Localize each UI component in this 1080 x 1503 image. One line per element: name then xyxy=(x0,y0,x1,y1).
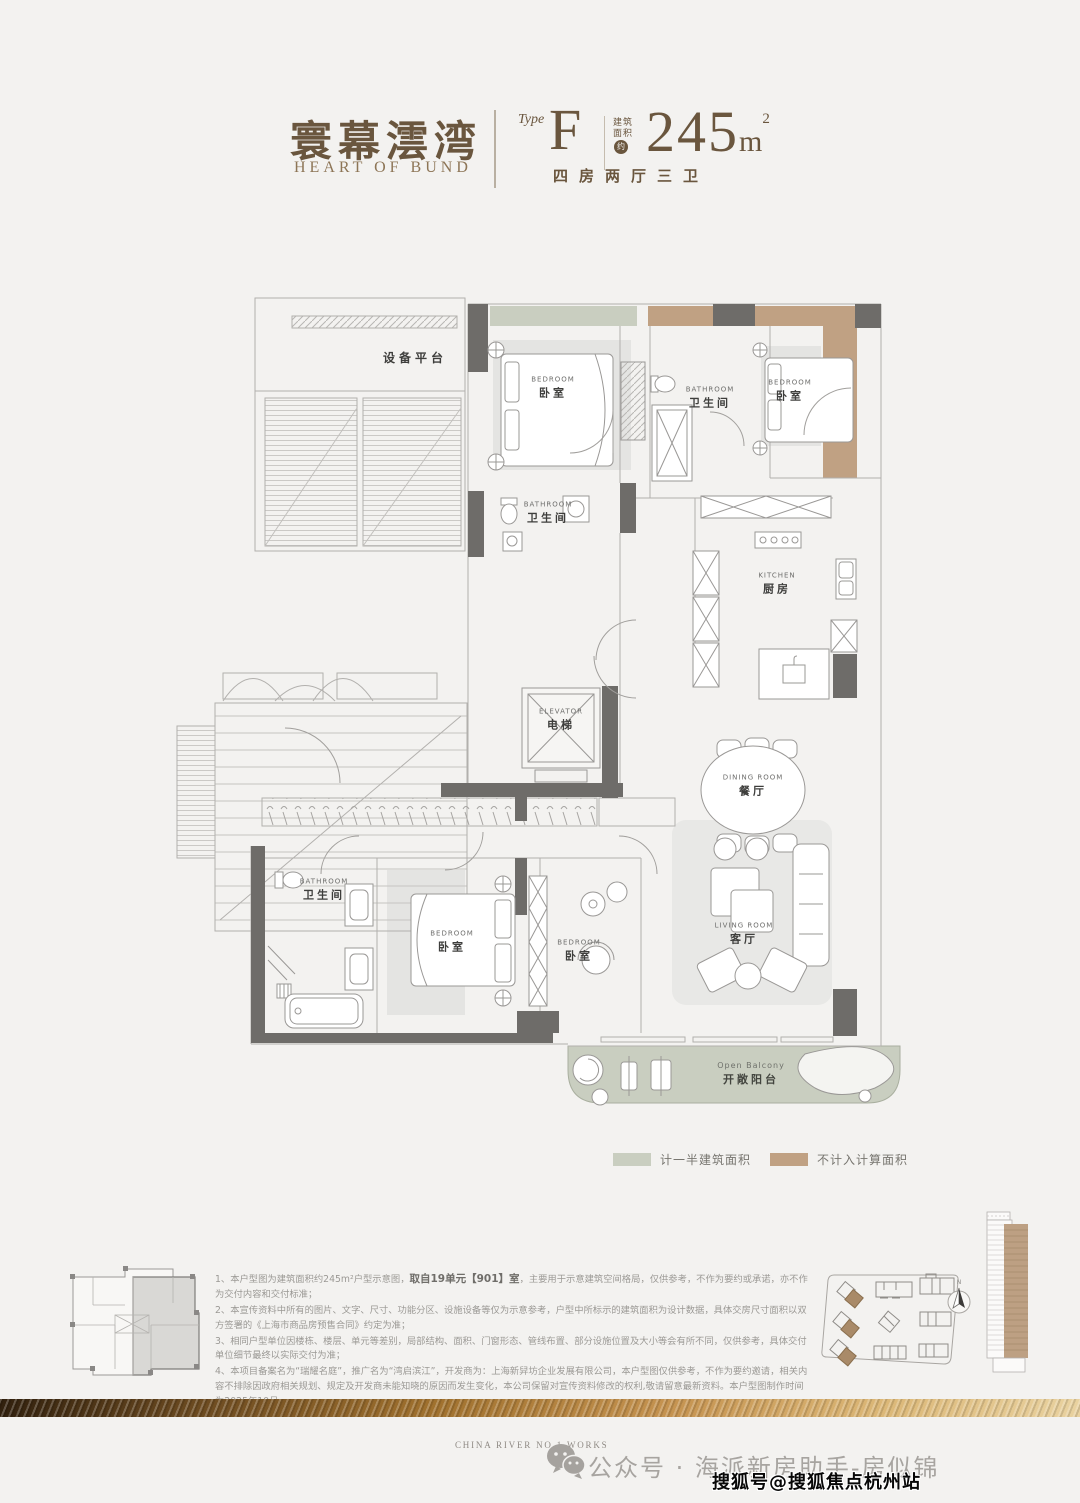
note-line-3: 3、相同户型单位因楼栋、楼层、单元等差别，局部结构、面积、门窗形态、管线布置、部… xyxy=(215,1335,809,1365)
room-label-bedroom-top-right: BEDROOM 卧室 xyxy=(768,379,812,404)
type-label: Type xyxy=(518,112,544,128)
equipment-label: 设备平台 xyxy=(383,349,447,366)
elevator-shaft xyxy=(522,688,600,782)
tower-stack-svg xyxy=(983,1210,1033,1374)
room-label-bathroom-bottom: BATHROOM 卫生间 xyxy=(300,878,349,903)
legend-swatch-brown xyxy=(770,1153,808,1166)
area-label: 建筑 面积 xyxy=(613,118,633,140)
room-label-bedroom-small: BEDROOM 卧室 xyxy=(557,939,601,964)
room-label-bedroom-master: BEDROOM 卧室 xyxy=(430,930,474,955)
room-label-equipment: 设备平台 xyxy=(383,348,447,366)
legend-label-brown: 不计入计算面积 xyxy=(817,1151,908,1168)
area-label-line2: 面积 xyxy=(613,129,633,139)
area-value: 245m2 xyxy=(646,98,770,165)
room-label-elevator: ELEVATOR 电梯 xyxy=(539,708,583,733)
legend-excluded: 不计入计算面积 xyxy=(770,1151,908,1168)
area-number: 245 xyxy=(646,99,739,164)
wardrobe-icon xyxy=(621,362,645,440)
room-label-living: LIVING ROOM 客厅 xyxy=(715,922,774,947)
legend-half-area: 计一半建筑面积 xyxy=(613,1151,751,1168)
header-divider-thin xyxy=(604,116,605,170)
approx-badge: 约 xyxy=(614,140,628,154)
kitchen-fixtures xyxy=(693,496,857,699)
poster-page: 寰幕澐湾 HEART OF BUND Type F 建筑 面积 约 245m2 … xyxy=(0,0,1080,1503)
wechat-icon xyxy=(546,1442,586,1484)
legend-label-green: 计一半建筑面积 xyxy=(660,1151,751,1168)
room-label-bedroom-top-left: BEDROOM 卧室 xyxy=(531,376,575,401)
header-divider xyxy=(494,110,496,188)
type-value: F xyxy=(549,96,581,163)
gold-divider-band xyxy=(0,1399,1080,1417)
tower-stack xyxy=(983,1210,1033,1378)
layout-summary: 四房两厅三卫 xyxy=(553,165,709,186)
key-plan xyxy=(55,1263,207,1397)
key-plan-svg xyxy=(55,1263,207,1393)
disclaimer-notes: 1、本户型图为建筑面积约245m²户型示意图，取自19单元【901】室，主要用于… xyxy=(215,1271,809,1411)
note-line-1: 1、本户型图为建筑面积约245m²户型示意图，取自19单元【901】室，主要用于… xyxy=(215,1271,809,1303)
bathroom-mid-fixtures xyxy=(501,498,522,551)
area-label-line1: 建筑 xyxy=(613,118,633,128)
room-label-dining: DINING ROOM 餐厅 xyxy=(723,774,784,799)
compass-svg: N xyxy=(942,1276,976,1320)
room-label-kitchen: KITCHEN 厨房 xyxy=(758,572,795,597)
room-label-bathroom-top: BATHROOM 卫生间 xyxy=(686,386,735,411)
area-sup: 2 xyxy=(762,111,770,127)
room-label-balcony: Open Balcony 开敞阳台 xyxy=(717,1061,785,1087)
bed-top-left-icon xyxy=(488,342,613,470)
project-name-en: HEART OF BUND xyxy=(294,159,472,177)
note-unit-highlight: 取自19单元【901】室 xyxy=(410,1273,520,1285)
note-line-2: 2、本宣传资料中所有的图片、文字、尺寸、功能分区、设施设备等仅为示意参考，户型中… xyxy=(215,1304,809,1334)
legend-swatch-green xyxy=(613,1153,651,1166)
room-label-bathroom-mid: BATHROOM 卫生间 xyxy=(524,501,573,526)
sohu-watermark: 搜狐号@搜狐焦点杭州站 xyxy=(712,1468,921,1494)
area-unit: m xyxy=(739,125,762,158)
floorplan: 设备平台 BEDROOM 卧室 BATHROOM 卫生间 BEDROOM 卧室 … xyxy=(165,258,905,1138)
compass-n-label: N xyxy=(957,1279,962,1286)
compass: N xyxy=(942,1276,976,1324)
